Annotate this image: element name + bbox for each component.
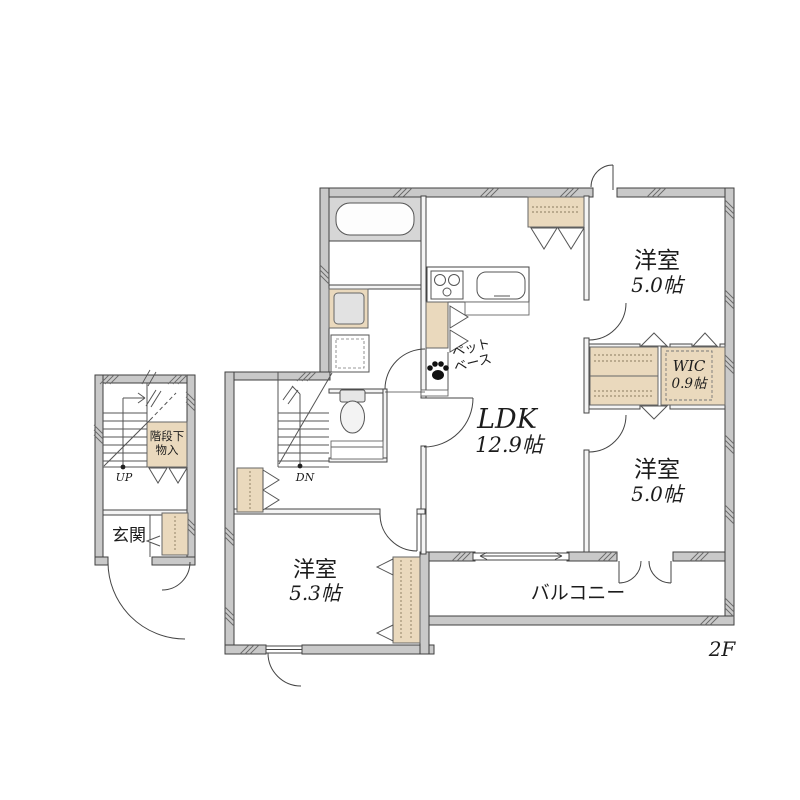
ldk-balcony-window [473,553,569,560]
label-wic-size: 0.9帖 [672,376,709,392]
bathroom [329,197,421,241]
label-bedroom-se-name: 洋室 [634,457,680,483]
label-stairs-up: UP [116,471,133,484]
sink-cabinet [465,302,529,315]
genkan-step [147,515,160,557]
toilet-room [331,390,383,459]
label-bedroom-ne-size: 5.0帖 [631,273,686,297]
balcony-door-left [619,561,641,583]
toilet-tank [340,390,365,402]
entrance-door-child [162,562,190,590]
label-stairs-down: DN [295,471,315,484]
label-bedroom-sw-size: 5.3帖 [289,581,344,605]
toilet-counter [331,441,383,459]
bedroom-sw-door [380,514,417,551]
sink [477,272,525,299]
washroom-door [385,349,425,389]
bedroom-sw-closet [393,557,420,643]
label-entrance: 玄関 [112,526,146,546]
balcony-door-right [649,561,671,583]
washer-pan [331,335,369,372]
label-ldk-size: 12.9帖 [475,433,546,457]
hall-closet [237,468,263,512]
ldk-hall-door [424,398,473,447]
label-floor: 2F [708,637,737,661]
label-balcony: バルコニー [531,582,626,604]
stairs-2f [278,372,332,468]
bedroom-sw-outswing-door [268,653,301,686]
paw-icon [427,361,449,380]
bedroom-ne-door [589,303,626,340]
vanity-basin [334,293,364,324]
floor-plan-page: LDK 12.9帖 洋室 5.0帖 洋室 5.0帖 洋室 5.3帖 WIC 0.… [0,0,800,800]
pantry [426,302,448,348]
label-bedroom-ne-name: 洋室 [634,248,680,274]
bedroom-se-door [589,415,626,452]
label-under-stairs-2: 物入 [156,443,179,457]
label-bedroom-sw-name: 洋室 [293,558,337,583]
label-under-stairs-1: 階段下 [150,429,185,443]
entrance-door-main [108,562,185,639]
washroom [329,289,369,372]
toilet-bowl [341,401,365,433]
floor-plan-canvas: LDK 12.9帖 洋室 5.0帖 洋室 5.0帖 洋室 5.3帖 WIC 0.… [0,0,800,800]
label-ldk-name: LDK [476,404,539,435]
label-wic-name: WIC [673,357,706,375]
label-bedroom-se-size: 5.0帖 [631,482,686,506]
stove [431,271,463,299]
top-exterior-door [591,165,613,190]
bathtub [336,203,414,235]
